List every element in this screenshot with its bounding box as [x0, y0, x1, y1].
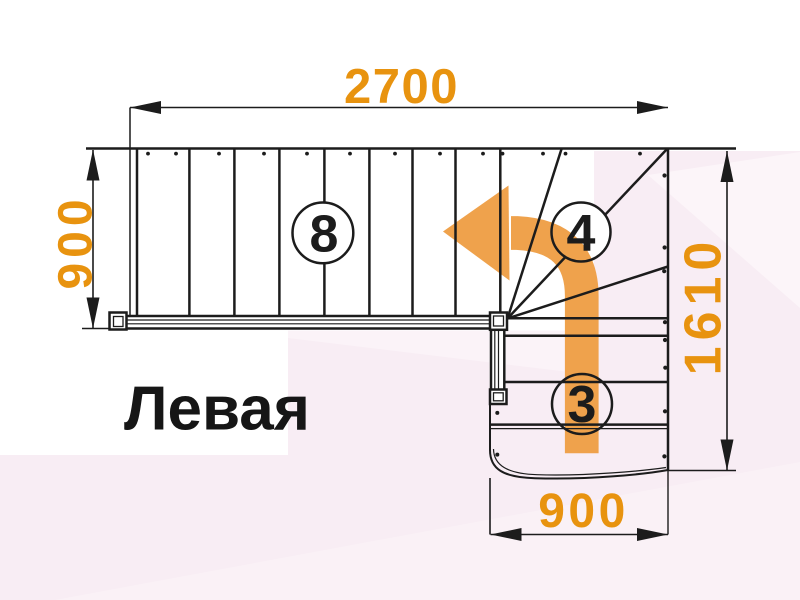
- svg-text:2700: 2700: [344, 60, 459, 114]
- svg-text:3: 3: [568, 376, 597, 434]
- svg-text:4: 4: [567, 205, 596, 263]
- svg-text:1610: 1610: [675, 236, 733, 376]
- svg-text:900: 900: [538, 485, 629, 538]
- svg-text:Левая: Левая: [124, 375, 310, 444]
- svg-text:900: 900: [50, 194, 103, 289]
- svg-text:8: 8: [310, 206, 339, 264]
